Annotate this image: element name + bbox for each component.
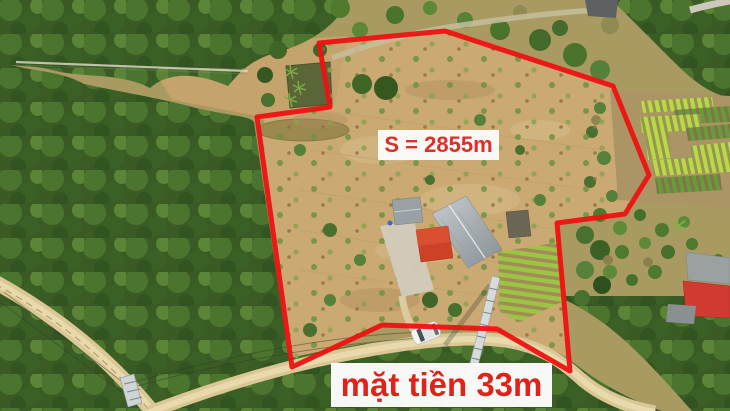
vegetable-garden-east (610, 90, 730, 208)
frontage-label-text: mặt tiền 33m (341, 366, 543, 404)
building-top-right (585, 0, 618, 18)
aerial-photo-scene (0, 0, 730, 411)
blue-barrel (388, 221, 393, 226)
area-label-text: S = 2855m (384, 132, 492, 158)
farmhouse-shed (666, 304, 696, 324)
area-label: S = 2855m (378, 130, 499, 160)
aerial-photo: S = 2855m mặt tiền 33m (0, 0, 730, 411)
dark-shed (506, 210, 531, 238)
frontage-label: mặt tiền 33m (331, 363, 552, 407)
